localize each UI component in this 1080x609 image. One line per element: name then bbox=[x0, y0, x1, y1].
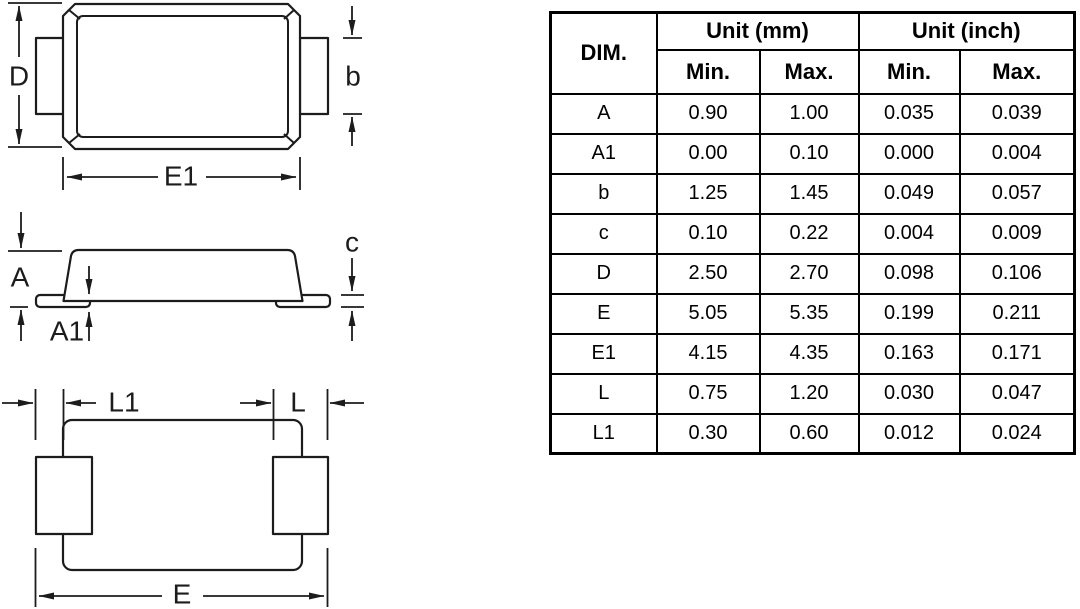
cell-in-max: 0.009 bbox=[960, 214, 1075, 254]
side-view-body bbox=[64, 250, 303, 301]
cell-in-max: 0.211 bbox=[960, 294, 1075, 334]
cell-mm-max: 1.20 bbox=[760, 374, 859, 414]
cell-mm-max: 0.60 bbox=[760, 414, 859, 454]
cell-dim: A bbox=[551, 94, 657, 134]
cell-in-max: 0.047 bbox=[960, 374, 1075, 414]
dim-label-D: D bbox=[9, 61, 29, 92]
table-row: c 0.10 0.22 0.004 0.009 bbox=[551, 214, 1075, 254]
table-row: E 5.05 5.35 0.199 0.211 bbox=[551, 294, 1075, 334]
table-header-units-row: DIM. Unit (mm) Unit (inch) bbox=[551, 13, 1075, 50]
dim-label-A1: A1 bbox=[50, 316, 84, 347]
cell-mm-min: 0.00 bbox=[657, 134, 760, 174]
top-view: D b E1 bbox=[8, 3, 362, 192]
package-outline-drawing: D b E1 bbox=[0, 0, 540, 609]
cell-mm-min: 0.90 bbox=[657, 94, 760, 134]
cell-in-max: 0.171 bbox=[960, 334, 1075, 374]
dim-label-A: A bbox=[11, 262, 30, 293]
cell-in-max: 0.039 bbox=[960, 94, 1075, 134]
dimension-c: c bbox=[341, 227, 364, 342]
table-row: b 1.25 1.45 0.049 0.057 bbox=[551, 174, 1075, 214]
cell-in-min: 0.163 bbox=[859, 334, 960, 374]
cell-in-min: 0.199 bbox=[859, 294, 960, 334]
cell-mm-min: 1.25 bbox=[657, 174, 760, 214]
cell-in-min: 0.035 bbox=[859, 94, 960, 134]
cell-mm-max: 5.35 bbox=[760, 294, 859, 334]
package-datasheet-page: D b E1 bbox=[0, 0, 1080, 609]
header-unit-mm: Unit (mm) bbox=[657, 13, 859, 50]
cell-mm-min: 0.10 bbox=[657, 214, 760, 254]
cell-dim: L bbox=[551, 374, 657, 414]
cell-mm-max: 0.22 bbox=[760, 214, 859, 254]
cell-in-max: 0.024 bbox=[960, 414, 1075, 454]
cell-mm-min: 4.15 bbox=[657, 334, 760, 374]
header-unit-inch: Unit (inch) bbox=[859, 13, 1075, 50]
table-row: L 0.75 1.20 0.030 0.047 bbox=[551, 374, 1075, 414]
cell-in-min: 0.098 bbox=[859, 254, 960, 294]
cell-mm-max: 1.00 bbox=[760, 94, 859, 134]
cell-mm-min: 0.75 bbox=[657, 374, 760, 414]
cell-mm-max: 4.35 bbox=[760, 334, 859, 374]
cell-dim: c bbox=[551, 214, 657, 254]
top-view-body bbox=[63, 4, 300, 149]
bottom-view-left-pad bbox=[36, 457, 92, 534]
table-row: A 0.90 1.00 0.035 0.039 bbox=[551, 94, 1075, 134]
side-view: A A1 c bbox=[8, 212, 364, 347]
cell-in-min: 0.012 bbox=[859, 414, 960, 454]
cell-mm-max: 1.45 bbox=[760, 174, 859, 214]
cell-mm-min: 2.50 bbox=[657, 254, 760, 294]
cell-in-min: 0.049 bbox=[859, 174, 960, 214]
cell-in-max: 0.106 bbox=[960, 254, 1075, 294]
cell-dim: L1 bbox=[551, 414, 657, 454]
cell-dim: E1 bbox=[551, 334, 657, 374]
cell-in-min: 0.004 bbox=[859, 214, 960, 254]
cell-dim: D bbox=[551, 254, 657, 294]
header-inch-max: Max. bbox=[960, 50, 1075, 94]
table-row: D 2.50 2.70 0.098 0.106 bbox=[551, 254, 1075, 294]
bottom-view-body bbox=[63, 420, 302, 570]
bottom-view: L1 L E bbox=[2, 387, 364, 609]
table-row: L1 0.30 0.60 0.012 0.024 bbox=[551, 414, 1075, 454]
cell-dim: E bbox=[551, 294, 657, 334]
dim-label-E: E bbox=[173, 579, 192, 609]
dimension-b: b bbox=[343, 6, 362, 146]
dim-label-E1: E1 bbox=[164, 161, 198, 192]
cell-mm-min: 5.05 bbox=[657, 294, 760, 334]
cell-dim: A1 bbox=[551, 134, 657, 174]
cell-mm-max: 0.10 bbox=[760, 134, 859, 174]
table-row: E1 4.15 4.35 0.163 0.171 bbox=[551, 334, 1075, 374]
dim-label-c: c bbox=[345, 227, 359, 258]
bottom-view-right-pad bbox=[273, 457, 328, 534]
cell-dim: b bbox=[551, 174, 657, 214]
header-mm-min: Min. bbox=[657, 50, 760, 94]
top-view-right-terminal bbox=[300, 38, 328, 114]
header-inch-min: Min. bbox=[859, 50, 960, 94]
dimension-table: DIM. Unit (mm) Unit (inch) Min. Max. Min… bbox=[549, 11, 1076, 455]
cell-mm-max: 2.70 bbox=[760, 254, 859, 294]
cell-in-max: 0.057 bbox=[960, 174, 1075, 214]
dim-label-b: b bbox=[345, 61, 361, 92]
table-row: A1 0.00 0.10 0.000 0.004 bbox=[551, 134, 1075, 174]
dim-label-L1: L1 bbox=[108, 387, 139, 418]
dimension-E1: E1 bbox=[63, 157, 300, 192]
cell-in-max: 0.004 bbox=[960, 134, 1075, 174]
top-view-left-terminal bbox=[36, 38, 64, 114]
cell-in-min: 0.000 bbox=[859, 134, 960, 174]
dim-label-L: L bbox=[290, 387, 306, 418]
cell-in-min: 0.030 bbox=[859, 374, 960, 414]
header-dim: DIM. bbox=[551, 13, 657, 94]
cell-mm-min: 0.30 bbox=[657, 414, 760, 454]
header-mm-max: Max. bbox=[760, 50, 859, 94]
